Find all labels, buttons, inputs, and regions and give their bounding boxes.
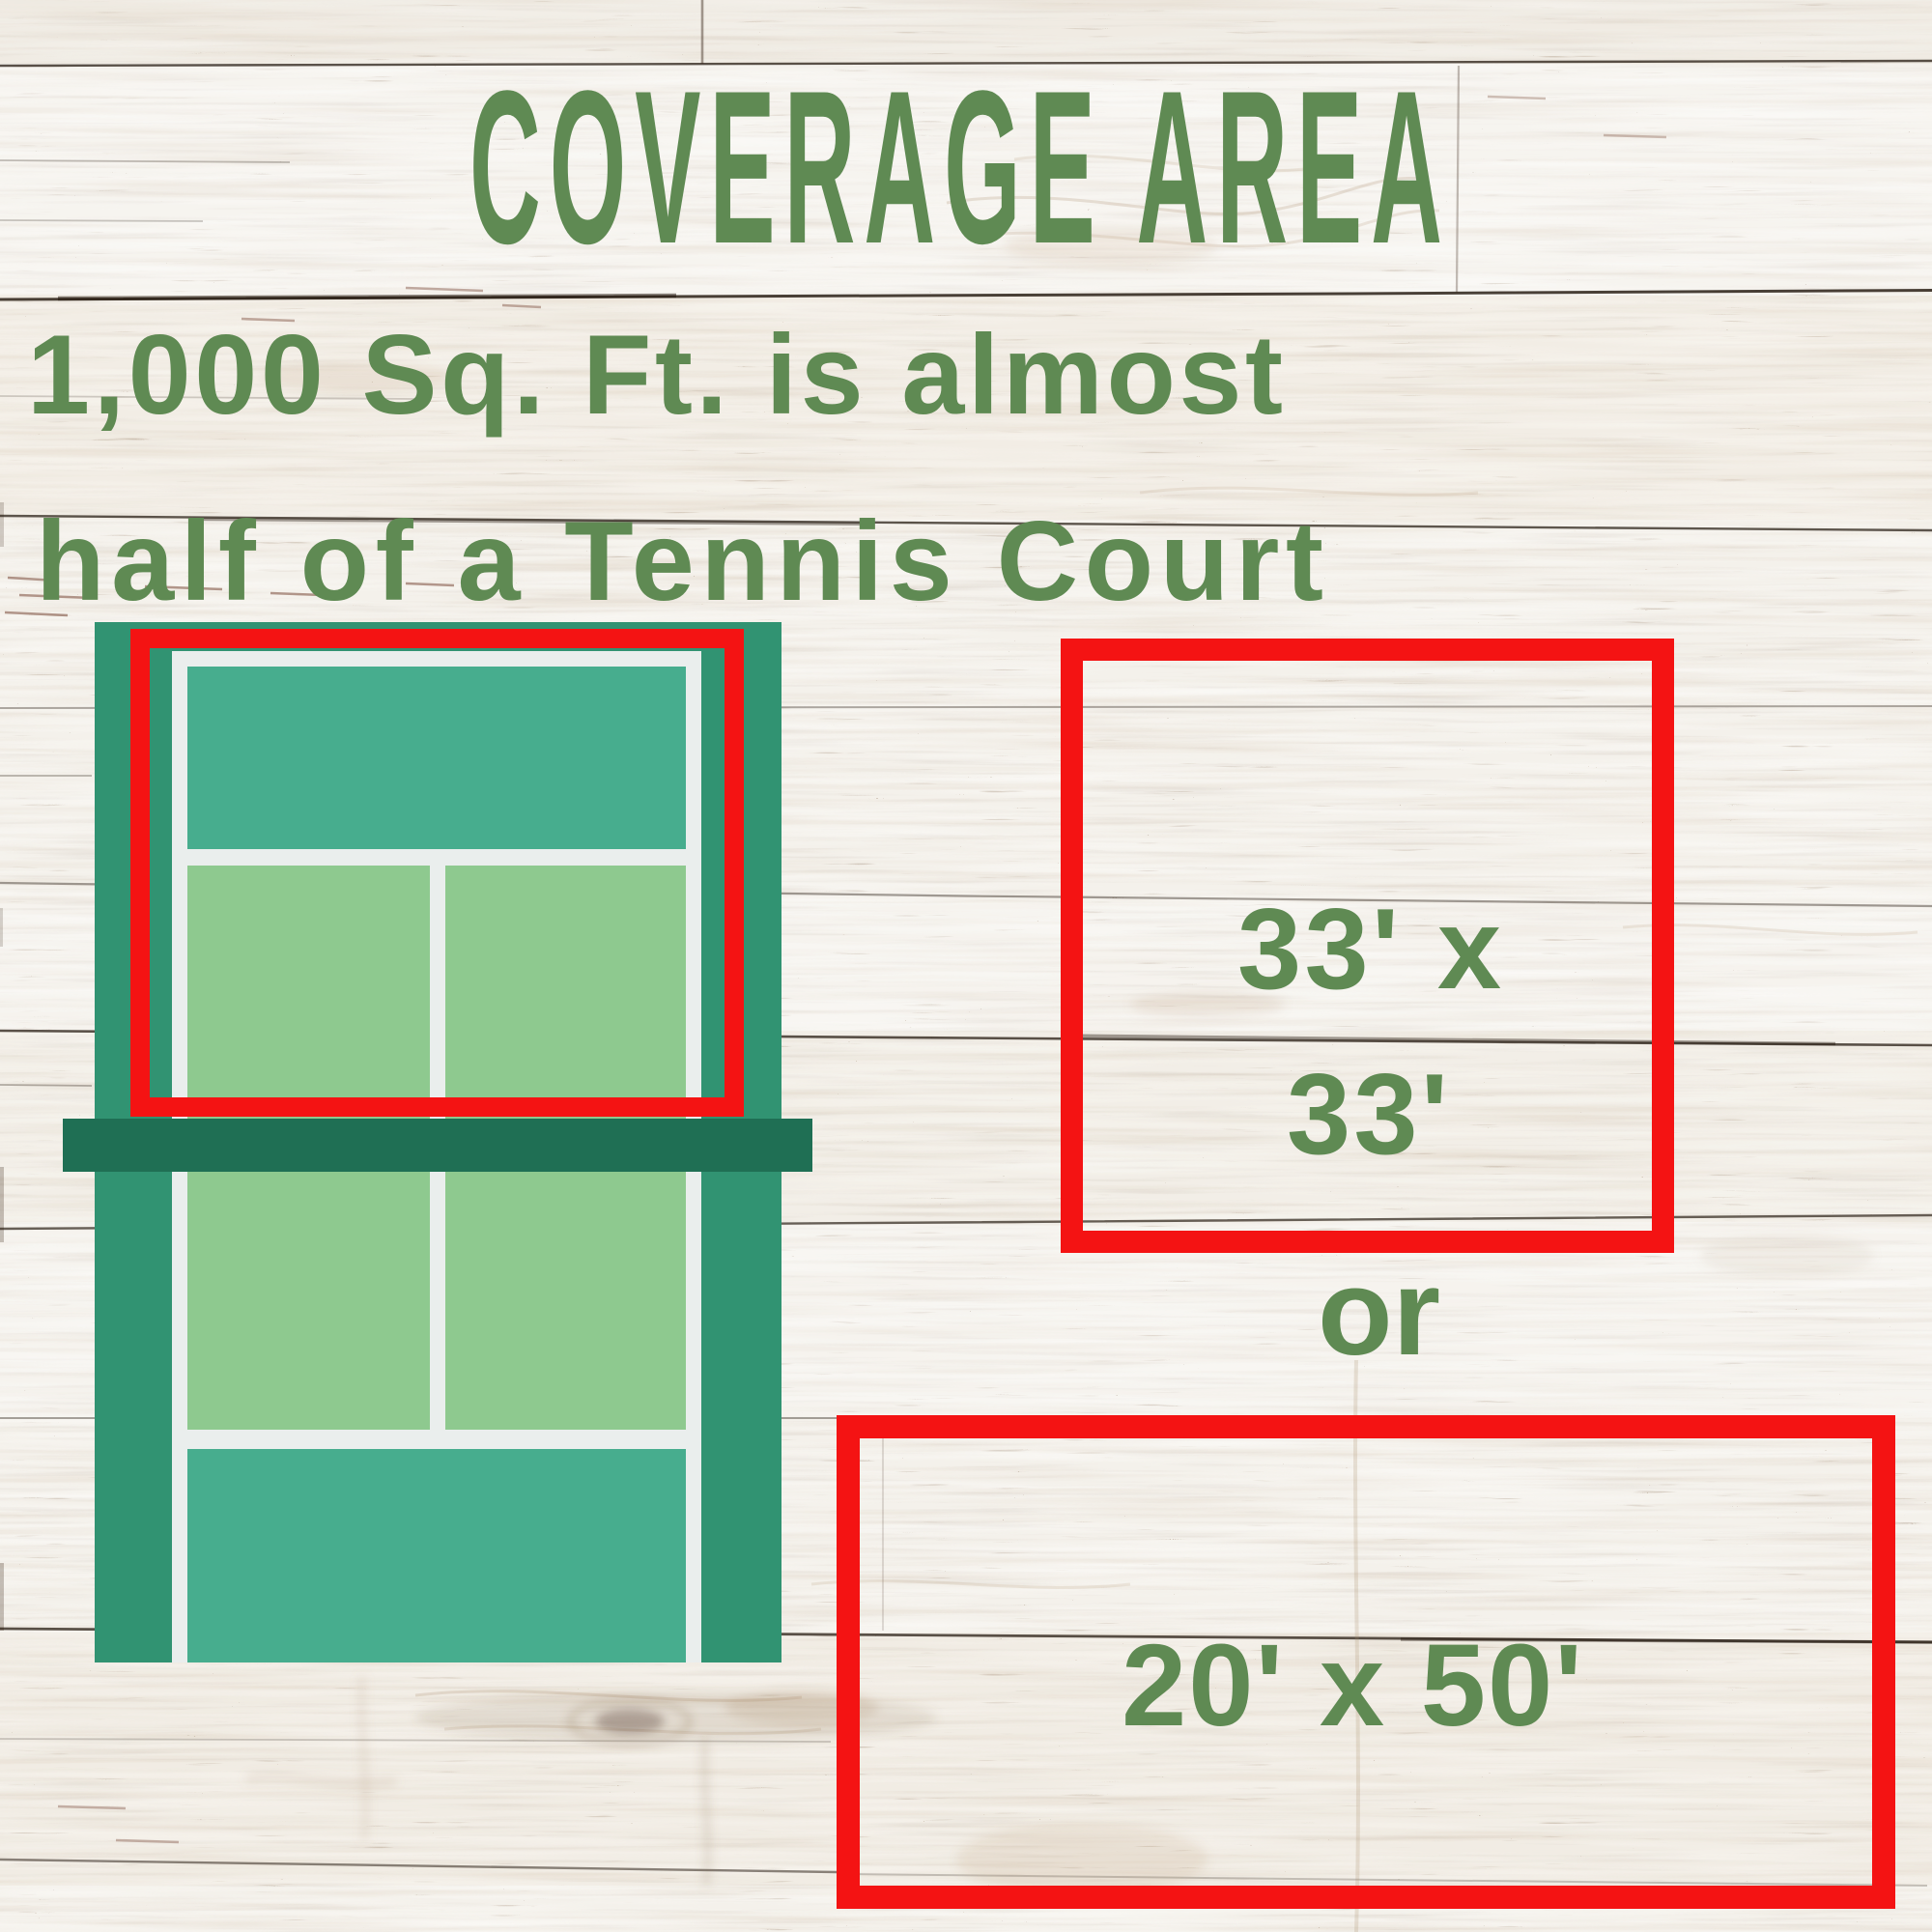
svg-text:1,000 Sq. Ft. is almost: 1,000 Sq. Ft. is almost bbox=[27, 311, 1283, 438]
svg-text:33': 33' bbox=[1287, 1050, 1448, 1179]
svg-text:COVERAGE AREA: COVERAGE AREA bbox=[469, 44, 1451, 289]
svg-text:or: or bbox=[1318, 1243, 1440, 1380]
svg-text:20' x 50': 20' x 50' bbox=[1122, 1619, 1582, 1750]
svg-text:half of a Tennis Court: half of a Tennis Court bbox=[36, 497, 1323, 624]
